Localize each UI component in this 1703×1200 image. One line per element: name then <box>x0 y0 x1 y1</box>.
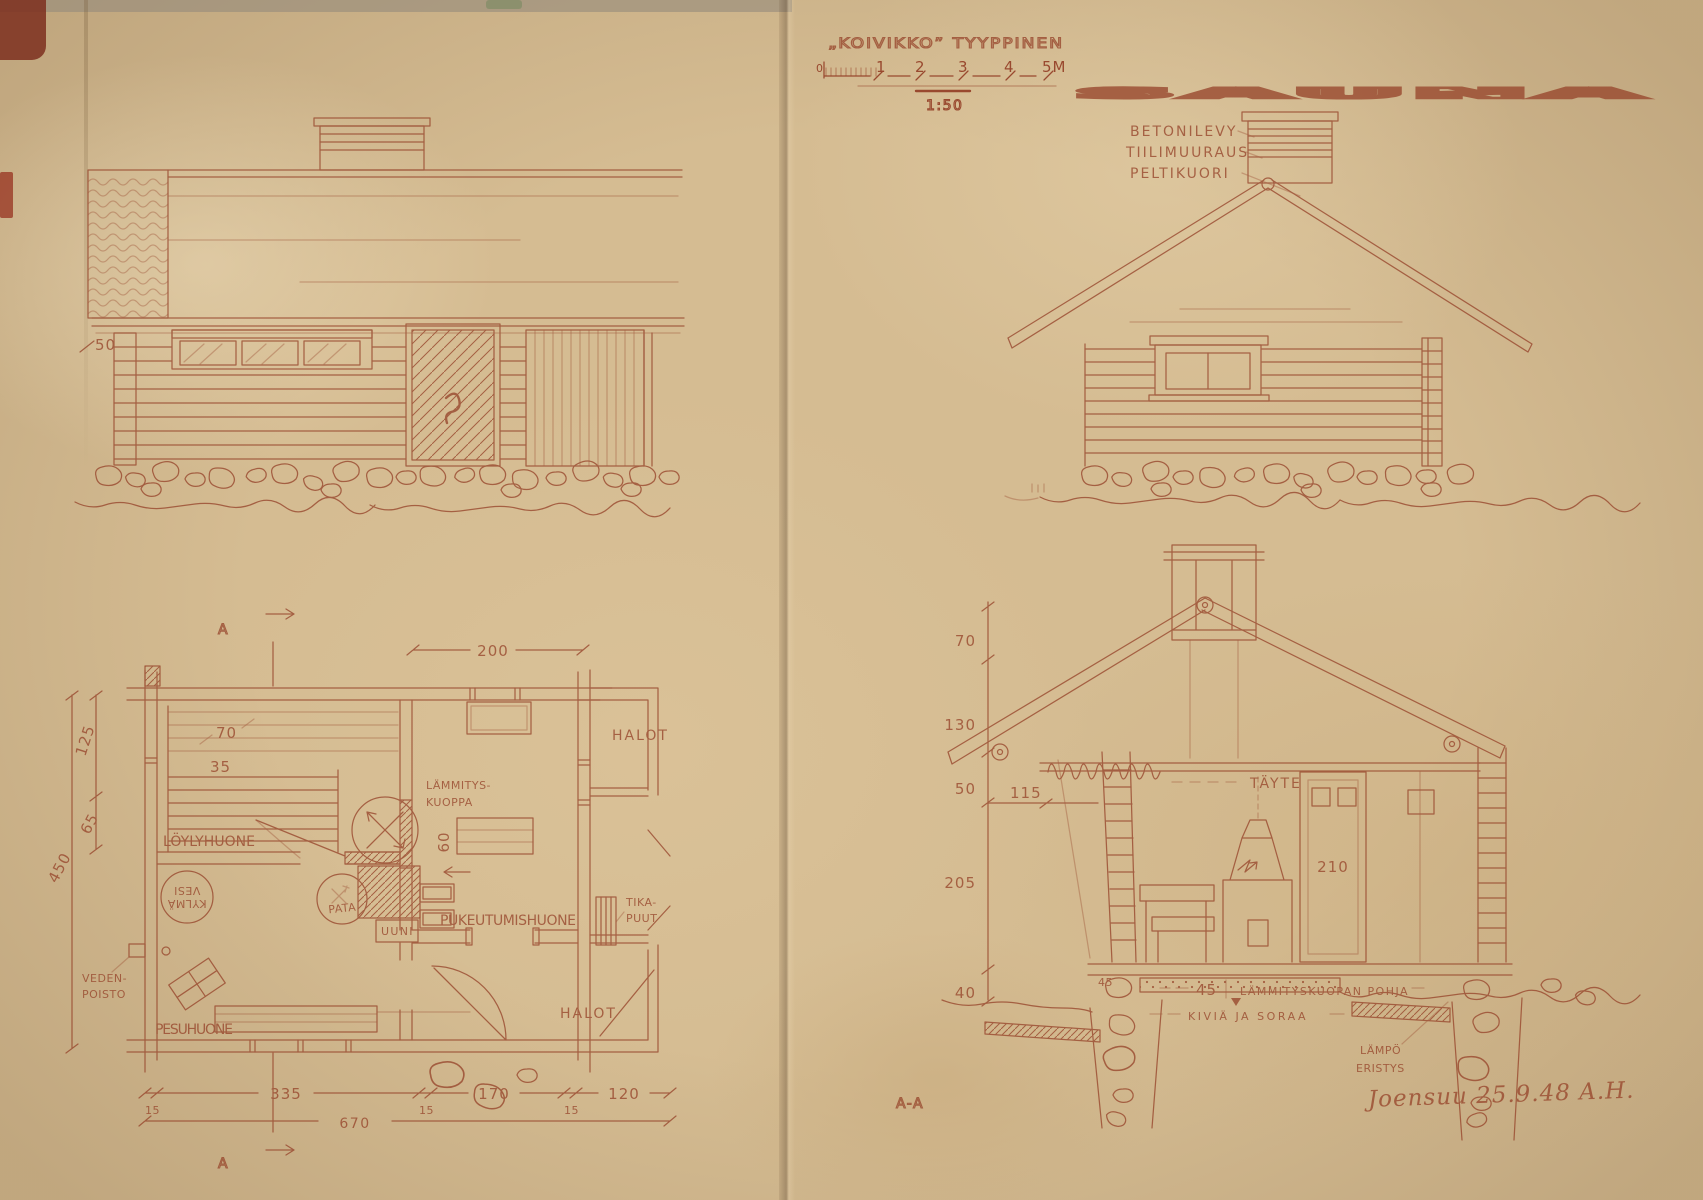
gable-foundation-stones <box>1082 460 1475 498</box>
front-door <box>406 324 500 466</box>
label-kylma: KYLMÄ <box>167 897 206 910</box>
sec-dim-50: 50 <box>955 780 976 798</box>
front-window <box>172 330 372 369</box>
section-right-wall <box>1478 748 1506 962</box>
dim-15-a: 15 <box>145 1104 160 1117</box>
gable-chimney <box>1242 112 1338 183</box>
section-ground-labels: 45 LÄMMITYSKUOPAN POHJA KIVIÄ JA SORAA L… <box>1150 980 1448 1075</box>
section-drawing: TÄYTE 210 <box>896 545 1640 1140</box>
front-elevation-drawing: 50 <box>75 118 684 517</box>
floor-drain-grate <box>169 958 226 1010</box>
scale-tick-3: 3 <box>958 58 969 76</box>
label-veden: VEDEN- <box>82 972 127 985</box>
scale-tick-2: 2 <box>915 58 926 76</box>
foundation-pier-left <box>1090 978 1162 1129</box>
label-poisto: POISTO <box>82 988 126 1001</box>
label-lammitys-2: KUOPPA <box>426 796 473 809</box>
label-vesi: VESI <box>174 884 201 897</box>
label-halot-bottom: HALOT <box>560 1006 617 1022</box>
label-kivia-ja-soraa: KIVIÄ JA SORAA <box>1188 1010 1306 1023</box>
section-chimney <box>1164 545 1264 758</box>
gable-elevation-drawing: BETONILEVY TIILIMUURAUS PELTIKUORI <box>1005 112 1640 512</box>
label-pata: PATA <box>328 901 357 917</box>
gable-window <box>1149 336 1269 401</box>
label-tika: TIKA- <box>625 896 657 909</box>
label-tayte: TÄYTE <box>1249 774 1302 792</box>
signature: Joensuu 25.9.48 A.H. <box>1363 1078 1634 1113</box>
section-stove <box>1223 774 1292 962</box>
dim-15-c: 15 <box>564 1104 579 1117</box>
label-uuni: UUNI <box>381 925 413 938</box>
scale-tick-5: 5M <box>1042 58 1067 76</box>
sec-dim-205: 205 <box>944 874 976 892</box>
dim-65: 65 <box>77 810 103 837</box>
dim-335: 335 <box>270 1085 302 1103</box>
chimney <box>314 118 430 170</box>
annex-door-swing <box>600 970 654 1036</box>
title-prefix: „KOIVIKKO” TYYPPINEN <box>828 36 1064 52</box>
scale-tick-4: 4 <box>1004 58 1015 76</box>
foundation-stones <box>96 459 680 497</box>
label-lammitys-1: LÄMMITYS- <box>426 779 491 792</box>
dim-60: 60 <box>435 831 453 852</box>
drawing-canvas: „KOIVIKKO” TYYPPINEN SAUNA 0 1 2 3 4 5M … <box>0 0 1703 1200</box>
section-title-aa: A-A <box>896 1096 924 1112</box>
sec-dim-45-pohja: 45 <box>1196 981 1217 999</box>
blueprint-page: „KOIVIKKO” TYYPPINEN SAUNA 0 1 2 3 4 5M … <box>0 0 1703 1200</box>
sec-dim-45-post: 45 <box>1098 976 1113 989</box>
dim-125: 125 <box>72 723 99 759</box>
label-pukeutumishuone: PUKEUTUMISHUONE <box>440 913 578 929</box>
dim-15-b: 15 <box>419 1104 434 1117</box>
section-marker-top: A <box>218 622 229 638</box>
section-door: 210 <box>1300 772 1366 962</box>
label-eristys: ERISTYS <box>1356 1062 1405 1075</box>
sec-dim-70: 70 <box>955 632 976 650</box>
scale-tick-1: 1 <box>876 58 887 76</box>
dim-70: 70 <box>216 724 237 742</box>
label-peltikuori: PELTIKUORI <box>1130 166 1230 182</box>
scale-bar: 0 1 2 3 4 5M 1:50 <box>816 58 1067 114</box>
dim-670: 670 <box>339 1116 370 1132</box>
label-betonilevy: BETONILEVY <box>1130 124 1237 140</box>
label-lampo: LÄMPÖ <box>1360 1044 1401 1057</box>
foundation-pier-right <box>1452 980 1522 1140</box>
label-puut: PUUT <box>626 912 657 925</box>
section-marker-bottom: A <box>218 1156 229 1172</box>
cold-water-symbol: KYLMÄ VESI <box>161 871 213 923</box>
section-benches <box>1140 885 1214 962</box>
front-dim-50: 50 <box>95 336 116 354</box>
label-loylyhuone: LÖYLYHUONE <box>163 832 257 850</box>
title-main: SAUNA <box>1078 86 1653 102</box>
scale-ratio: 1:50 <box>926 98 963 114</box>
ladder-symbol <box>596 897 616 945</box>
sec-dim-130: 130 <box>944 716 976 734</box>
label-halot-top: HALOT <box>612 728 669 744</box>
dim-200: 200 <box>477 642 509 660</box>
dim-170: 170 <box>478 1085 510 1103</box>
dim-35: 35 <box>210 758 231 776</box>
floor-plan-drawing: KYLMÄ VESI PATA UUNI LÖYLYH <box>44 609 676 1172</box>
sec-dim-40: 40 <box>955 984 976 1002</box>
dim-450: 450 <box>44 849 75 885</box>
scale-tick-0: 0 <box>816 62 824 75</box>
sec-dim-115: 115 <box>1010 784 1042 802</box>
dim-120: 120 <box>608 1085 640 1103</box>
label-tiilimuuraus: TIILIMUURAUS <box>1125 145 1249 161</box>
label-lammityskuopan-pohja: LÄMMITYSKUOPAN POHJA <box>1240 985 1408 998</box>
main-door-swing <box>432 966 506 1040</box>
section-left-wall <box>1058 752 1136 962</box>
label-pesuhuone: PESUHUONE <box>155 1022 235 1038</box>
dim-210: 210 <box>1317 858 1349 876</box>
